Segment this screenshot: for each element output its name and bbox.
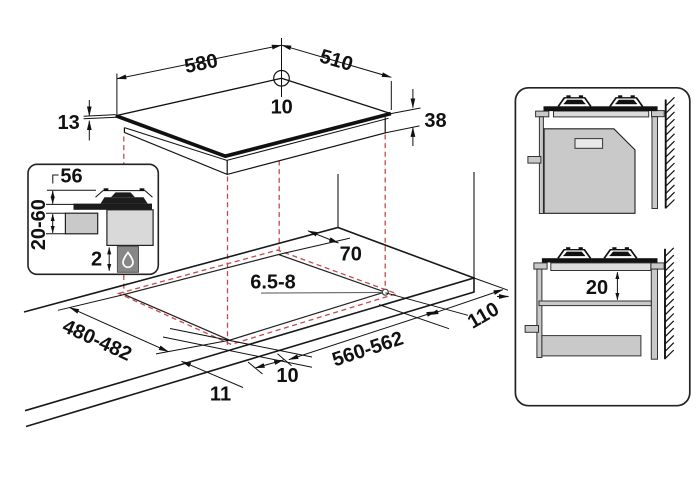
svg-text:6.5-8: 6.5-8 <box>250 272 296 294</box>
svg-text:13: 13 <box>57 112 79 134</box>
svg-text:20-60: 20-60 <box>28 199 50 250</box>
svg-text:10: 10 <box>271 97 293 119</box>
svg-text:56: 56 <box>60 166 82 188</box>
svg-text:38: 38 <box>424 110 446 132</box>
svg-text:20: 20 <box>586 277 608 299</box>
svg-text:70: 70 <box>340 244 362 266</box>
svg-text:10: 10 <box>276 365 298 387</box>
svg-text:11: 11 <box>210 384 231 406</box>
svg-text:2: 2 <box>91 249 102 271</box>
